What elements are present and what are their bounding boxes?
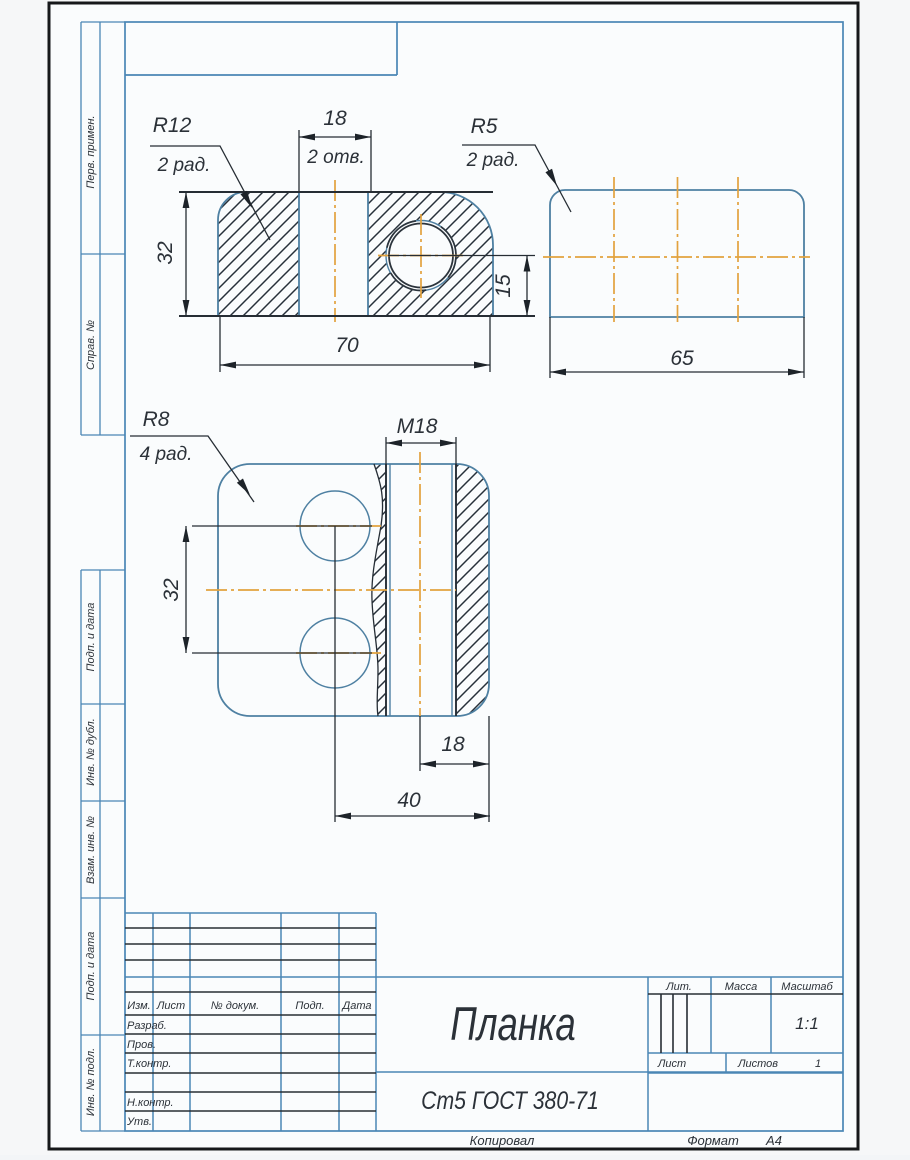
svg-text:Копировал: Копировал bbox=[470, 1133, 535, 1148]
svg-text:Лист: Лист bbox=[657, 1058, 686, 1070]
svg-text:Дата: Дата bbox=[340, 1000, 371, 1012]
svg-text:R12: R12 bbox=[153, 114, 192, 137]
svg-text:Формат: Формат bbox=[687, 1133, 739, 1148]
svg-text:70: 70 bbox=[335, 334, 359, 357]
svg-text:Справ. №: Справ. № bbox=[85, 320, 97, 370]
svg-text:32: 32 bbox=[160, 578, 183, 602]
svg-text:2 отв.: 2 отв. bbox=[306, 147, 364, 168]
svg-text:№ докум.: № докум. bbox=[211, 1000, 259, 1012]
svg-text:65: 65 bbox=[670, 347, 694, 370]
svg-text:40: 40 bbox=[397, 789, 421, 812]
svg-text:15: 15 bbox=[492, 274, 515, 298]
svg-text:4 рад.: 4 рад. bbox=[140, 444, 193, 465]
svg-text:А4: А4 bbox=[765, 1133, 782, 1148]
svg-text:Листов: Листов bbox=[737, 1058, 778, 1070]
svg-text:18: 18 bbox=[441, 733, 465, 756]
svg-text:Планка: Планка bbox=[450, 998, 575, 1050]
svg-text:18: 18 bbox=[323, 107, 347, 130]
svg-text:Лит.: Лит. bbox=[665, 981, 692, 993]
svg-text:Изм.: Изм. bbox=[127, 1000, 150, 1012]
svg-text:R5: R5 bbox=[471, 115, 498, 138]
svg-text:Разраб.: Разраб. bbox=[127, 1020, 167, 1032]
svg-text:R8: R8 bbox=[143, 408, 170, 431]
svg-text:Пров.: Пров. bbox=[127, 1039, 156, 1051]
svg-text:Подп. и дата: Подп. и дата bbox=[85, 932, 97, 1001]
svg-text:Подп.: Подп. bbox=[295, 1000, 324, 1012]
svg-text:Подп. и дата: Подп. и дата bbox=[85, 603, 97, 672]
svg-text:2 рад.: 2 рад. bbox=[157, 155, 211, 176]
svg-text:Инв. № подл.: Инв. № подл. bbox=[85, 1048, 97, 1116]
svg-text:1:1: 1:1 bbox=[795, 1014, 819, 1033]
svg-text:Т.контр.: Т.контр. bbox=[127, 1058, 171, 1070]
svg-text:Масштаб: Масштаб bbox=[781, 981, 833, 993]
svg-text:Перв. примен.: Перв. примен. bbox=[85, 115, 97, 188]
svg-text:Утв.: Утв. bbox=[126, 1116, 152, 1128]
svg-text:32: 32 bbox=[154, 241, 177, 265]
svg-text:Лист: Лист bbox=[156, 1000, 185, 1012]
svg-text:Н.контр.: Н.контр. bbox=[127, 1097, 174, 1109]
svg-text:2 рад.: 2 рад. bbox=[466, 150, 520, 171]
svg-text:Масса: Масса bbox=[725, 981, 758, 993]
svg-text:Инв. № дубл.: Инв. № дубл. bbox=[85, 718, 97, 786]
svg-text:М18: М18 bbox=[397, 415, 438, 438]
svg-text:1: 1 bbox=[815, 1058, 821, 1070]
svg-text:Взам. инв. №: Взам. инв. № bbox=[85, 816, 97, 884]
svg-text:Ст5 ГОСТ 380-71: Ст5 ГОСТ 380-71 bbox=[421, 1086, 599, 1114]
